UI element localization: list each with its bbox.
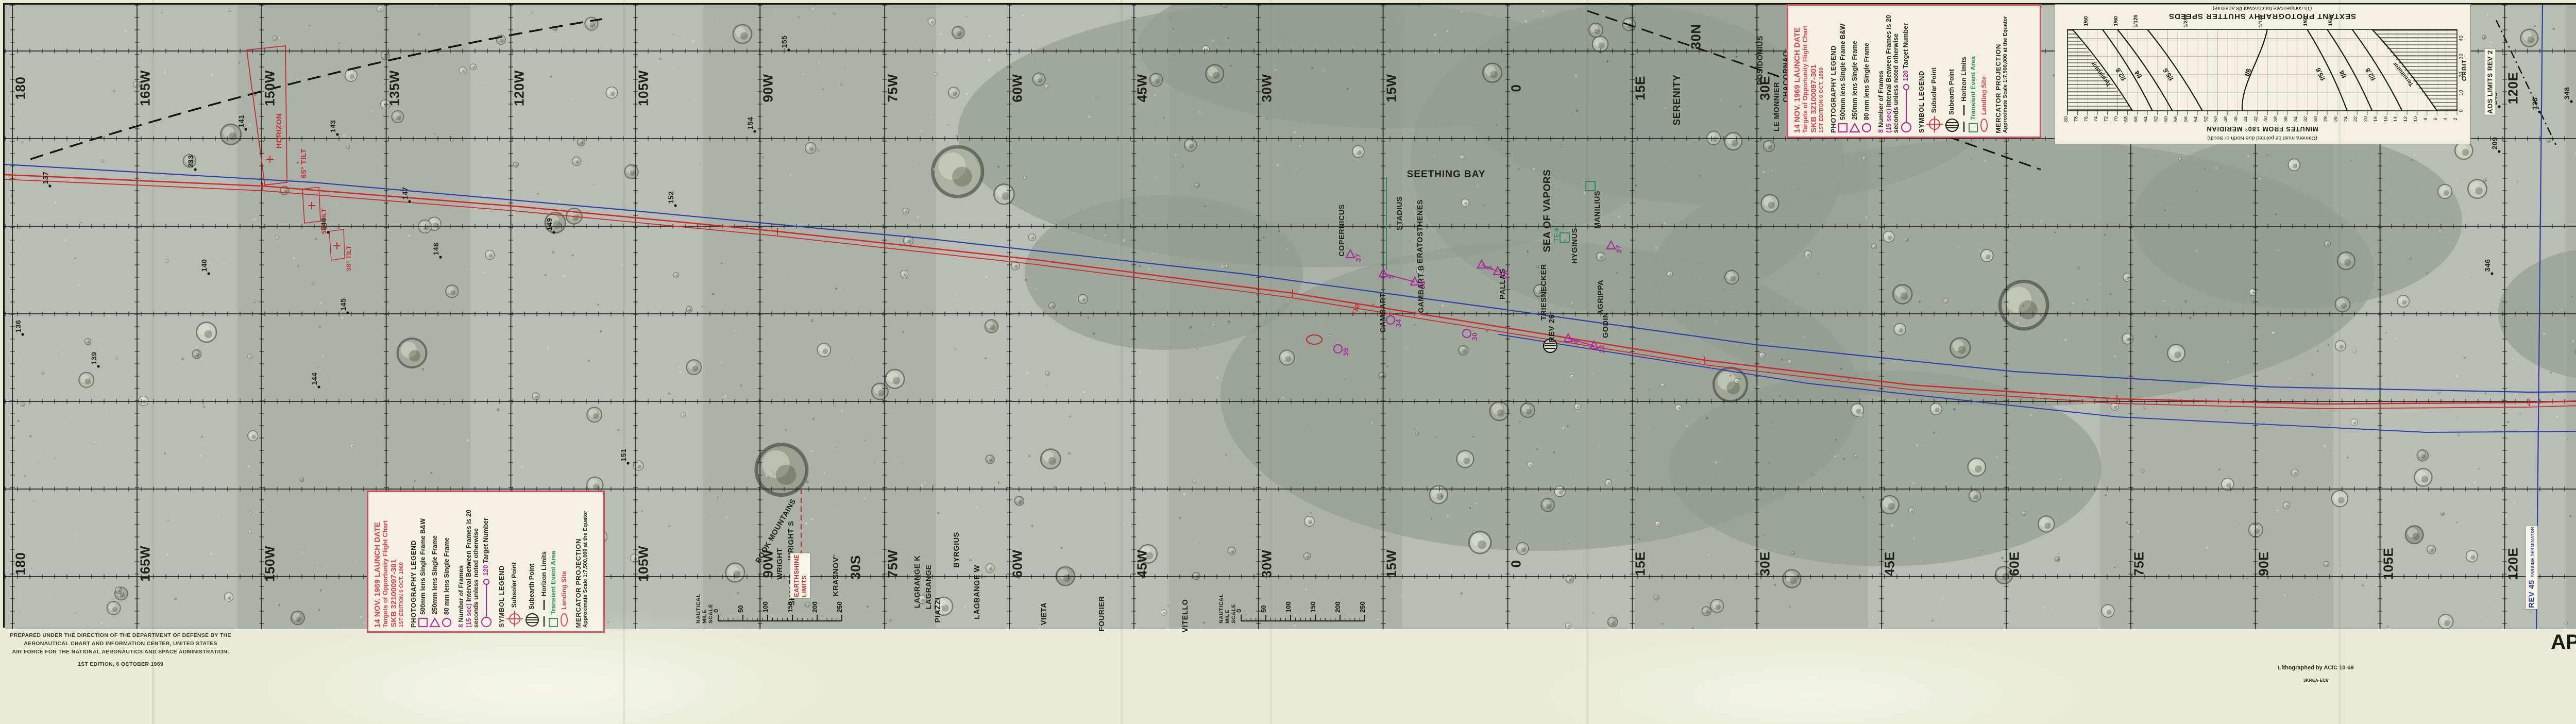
crater-label: MANILIUS	[1594, 191, 1602, 229]
svg-text:30: 30	[2459, 54, 2464, 60]
tilt-annotation: 65° TILT	[299, 148, 308, 178]
crater-label: ERATOSTHENES	[1416, 199, 1425, 263]
legend-line-text: 14 NOV. 1969 LAUNCH DATE	[1793, 27, 1801, 133]
legend-line-text: PHOTOGRAPHY LEGEND	[1830, 45, 1837, 133]
title-block: APOLLO TARGETS OF OPPORTUNITY FLIGHT CHA…	[2543, 631, 2576, 722]
attribution-line: 1ST EDITION, 6 OCTOBER 1969	[4, 661, 237, 669]
legend-line: 80 mm lens Single Frame	[1861, 9, 1872, 133]
subsolar-icon	[1926, 115, 1943, 133]
legend-line: 250mm lens Single Frame	[1849, 9, 1861, 133]
meridian-label: 150W	[262, 70, 278, 106]
crater-label: KRASNOV	[832, 557, 840, 596]
legend-line-text: Horizon Limits	[1961, 57, 1968, 102]
numbered-point-label: 143	[329, 120, 337, 133]
crater-label: VITELLO	[1181, 599, 1190, 633]
crater-label: LE MONNIER	[1773, 82, 1781, 131]
meridian-label: 105E	[2380, 548, 2396, 580]
svg-text:36: 36	[2283, 116, 2289, 122]
svg-text:(Camera must be pointed due No: (Camera must be pointed due North or Sou…	[2207, 135, 2317, 141]
sea-label: SEA OF VAPORS	[1542, 170, 1553, 252]
photo-target-number: 5	[1387, 275, 1395, 279]
legend-line: Subsolar Point	[1925, 9, 1944, 133]
svg-text:52: 52	[2203, 116, 2209, 122]
svg-text:1/125: 1/125	[2133, 14, 2139, 27]
legend-prefix-number: 8	[457, 622, 465, 628]
legend-line-text: SYMBOL LEGEND	[1918, 71, 1925, 133]
svg-text:76: 76	[2083, 116, 2089, 122]
legend-line-text: 250mm lens Single Frame	[432, 535, 438, 615]
legend-line: Transient Event Area	[1968, 9, 1979, 133]
legend-line: 120 Target Number	[1900, 9, 1912, 133]
legend-box-left: 14 NOV. 1969 LAUNCH DATETargets of Oppor…	[367, 491, 605, 633]
launch-date-line: 14 NOVEMBER 1969 LAUNCH DATE	[2543, 702, 2576, 722]
red-ellipse-icon	[1979, 117, 1989, 133]
legend-line: MERCATOR PROJECTION	[1994, 9, 2002, 133]
rev-terminator-ribbon: REV 45 FARSIDE TERMINATOR	[2526, 526, 2538, 609]
meridian-label: 15W	[1383, 550, 1399, 578]
legend-line: 500mm lens Single Frame B&W	[1837, 9, 1849, 133]
svg-text:32: 32	[2303, 116, 2309, 122]
subearth-icon	[1944, 117, 1960, 133]
svg-text:40: 40	[2459, 36, 2464, 42]
legend-line-text: Subsolar Point	[511, 562, 518, 608]
svg-text:1/60: 1/60	[2113, 16, 2119, 26]
numbered-point-label: 151	[619, 449, 628, 462]
crater-label: LAGRANGE K	[913, 555, 922, 608]
legend-line-text: 14 NOV. 1969 LAUNCH DATE	[374, 522, 381, 628]
legend-prefix-number: (15 sec)	[1885, 107, 1892, 133]
legend-line: Targets of Opportunity Flight Chart	[382, 496, 389, 628]
attribution-note: PREPARED UNDER THE DIRECTION OF THE DEPA…	[4, 632, 237, 669]
legend-line-text: 1ST EDITION 6 OCT. 1969	[1819, 68, 1824, 133]
legend-prefix-number: 120	[482, 563, 489, 576]
green-square-icon	[1968, 123, 1978, 133]
meridian-label: 45W	[1134, 74, 1150, 103]
aos-limits-ribbon: AOS LIMITS REV 2	[2485, 49, 2496, 115]
subearth-icon	[524, 612, 540, 628]
meridian-label: 90E	[2256, 551, 2272, 576]
legend-line: seconds unless noted otherwise	[1892, 9, 1900, 133]
legend-line: 80 mm lens Single Frame	[441, 496, 452, 628]
svg-text:26: 26	[2333, 116, 2338, 122]
meridian-label: 150W	[262, 546, 278, 582]
legend-line-text: SKB 32100097-301	[390, 559, 398, 628]
legend-line: Horizon Limits	[1960, 9, 1968, 133]
legend-line: 500mm lens Single Frame B&W	[417, 496, 429, 628]
chart-title: APOLLO TARGETS OF OPPORTUNITY FLIGHT CHA…	[2543, 631, 2576, 677]
numbered-point-label: 137	[41, 172, 49, 184]
svg-text:74: 74	[2093, 116, 2099, 122]
meridian-label: 180	[13, 77, 29, 100]
mission-subtitle: APOLLO MISSION 12	[2543, 682, 2576, 696]
legend-line: 8 Number of Frames	[1877, 9, 1885, 133]
tilt-annotation: 50° TILT	[320, 208, 328, 234]
crater-label: PIAZZI	[934, 598, 942, 623]
meridian-label: 75E	[2131, 551, 2147, 576]
legend-line-text: PHOTOGRAPHY LEGEND	[410, 540, 417, 628]
photo-target-number: 37	[1354, 254, 1362, 262]
legend-line-text: SKB 32100097-301	[1810, 64, 1818, 133]
numbered-point-label: 144	[310, 373, 318, 385]
svg-text:60: 60	[2163, 116, 2169, 122]
legend-line: Approximate Scale 1:7,500,000 at the Equ…	[582, 496, 589, 628]
svg-text:24: 24	[2343, 116, 2349, 122]
svg-text:f/5.6: f/5.6	[2314, 66, 2327, 82]
numbered-point-label: 209	[2490, 137, 2499, 150]
legend-line: Landing Site	[1979, 9, 1989, 133]
sextant-graph-art: (Camera must be pointed due North or Sou…	[2055, 5, 2470, 144]
legend-line-text: Transient Event Area	[550, 551, 557, 615]
svg-text:10: 10	[2459, 90, 2464, 96]
sea-label: SERENITY	[1672, 74, 1683, 125]
svg-text:12: 12	[2403, 116, 2409, 122]
legend-line-text: (15 sec) Interval Between Frames is 20	[1886, 15, 1892, 133]
meridian-label: 105W	[636, 546, 652, 582]
red-ellipse-icon	[560, 612, 569, 628]
legend-line: Approximate Scale 1:7,500,000 at the Equ…	[2002, 9, 2009, 133]
meridian-label: 45W	[1134, 550, 1150, 578]
meridian-label: 75W	[885, 550, 901, 578]
svg-text:80: 80	[2063, 116, 2069, 122]
meridian-label: 15E	[1633, 551, 1649, 576]
crater-label: STADIUS	[1396, 196, 1404, 230]
meridian-label: 0	[1508, 85, 1524, 92]
legend-line-text: SYMBOL LEGEND	[498, 565, 505, 628]
legend-line: SYMBOL LEGEND	[1918, 9, 1925, 133]
meridian-label: 90W	[760, 74, 776, 103]
legend-line-text: 8 Number of Frames	[1878, 71, 1885, 133]
svg-text:(To compensate for constant f/: (To compensate for constant f/8 aperture…	[2213, 5, 2312, 11]
attribution-line: PREPARED UNDER THE DIRECTION OF THE DEPA…	[4, 632, 237, 640]
legend-line: PHOTOGRAPHY LEGEND	[410, 496, 417, 628]
svg-text:2: 2	[2453, 117, 2459, 120]
svg-text:1/60: 1/60	[2083, 16, 2089, 26]
legend-line-text: Approximate Scale 1:7,500,000 at the Equ…	[583, 511, 588, 628]
legend-prefix-number: 120	[1902, 69, 1909, 81]
legend-line: 1ST EDITION 6 OCT. 1969	[1818, 9, 1825, 133]
legend-line-text: Subearth Point	[1948, 69, 1955, 115]
meridian-label: 30W	[1259, 550, 1275, 578]
legend-line-text: Horizon Limits	[541, 551, 548, 596]
photo-target-number: 39	[1342, 348, 1350, 357]
numbered-point-label: 145	[339, 298, 347, 311]
meridian-label: 30E	[1757, 551, 1773, 576]
square-icon	[1838, 123, 1848, 133]
meridian-label: 60W	[1010, 550, 1026, 578]
target-line-icon	[1901, 83, 1912, 133]
legend-line-text: 8 Number of Frames	[458, 565, 465, 628]
meridian-label: 30W	[1259, 74, 1275, 103]
legend-line-text: MERCATOR PROJECTION	[575, 538, 582, 628]
numbered-point-label: 149	[545, 218, 553, 231]
legend-line-text: Transient Event Area	[1970, 56, 1977, 120]
sextant-shutter-speed-graph: (Camera must be pointed due North or Sou…	[2055, 4, 2471, 144]
crater-label: HYGINUS	[1571, 228, 1579, 264]
svg-text:28: 28	[2323, 116, 2329, 122]
circle-icon	[442, 617, 452, 628]
legend-line: Subearth Point	[1944, 9, 1960, 133]
svg-text:20: 20	[2363, 116, 2369, 122]
crater-label: FOURIER	[1098, 596, 1106, 632]
crater-label: VIETA	[1040, 602, 1048, 625]
legend-line: (15 sec) Interval Between Frames is 20	[465, 496, 473, 628]
legend-line: Horizon Limits	[540, 496, 548, 628]
svg-text:6: 6	[2433, 117, 2438, 120]
earthshine-limits-label: EARTHSHINELIMITS	[790, 553, 810, 598]
meridian-label: 60E	[2007, 551, 2023, 576]
legend-line: MERCATOR PROJECTION	[574, 496, 582, 628]
legend-line: SKB 32100097-301	[1809, 9, 1818, 133]
legend-line: (15 sec) Interval Between Frames is 20	[1885, 9, 1893, 133]
crater-label: GODIN	[1602, 312, 1610, 338]
svg-text:56: 56	[2183, 116, 2189, 122]
latitude-label: 30N	[1688, 24, 1704, 49]
legend-line-text: 500mm lens Single Frame B&W	[1840, 24, 1846, 120]
meridian-label: 0	[1508, 560, 1524, 568]
numbered-point-label: 139	[90, 352, 98, 365]
photo-target-number: 27	[1615, 245, 1623, 254]
legend-line-text: Subsolar Point	[1931, 68, 1938, 113]
legend-line: Targets of Opportunity Flight Chart	[1802, 9, 1809, 133]
svg-text:0: 0	[2459, 109, 2464, 112]
svg-text:66: 66	[2133, 116, 2139, 122]
legend-line: Subsolar Point	[505, 496, 524, 628]
legend-line: 14 NOV. 1969 LAUNCH DATE	[1793, 9, 1802, 133]
svg-text:48: 48	[2223, 116, 2229, 122]
svg-text:MINUTES FROM 180° MERIDIAN: MINUTES FROM 180° MERIDIAN	[2206, 125, 2318, 132]
crater-label: GAMBART	[1379, 293, 1387, 333]
svg-text:44: 44	[2243, 116, 2249, 122]
svg-text:68: 68	[2123, 116, 2129, 122]
numbered-point-label: 154	[746, 117, 754, 130]
meridian-label: 120W	[511, 70, 527, 106]
numbered-point-label: 140	[200, 259, 208, 272]
legend-line-text: Landing Site	[1981, 76, 1988, 115]
photo-target-number: 28	[1501, 271, 1510, 279]
subsolar-icon	[506, 610, 523, 628]
legend-line-text: (15 sec) Interval Between Frames is 20	[466, 510, 472, 628]
dashes-icon	[1962, 104, 1966, 133]
svg-text:4: 4	[2443, 117, 2449, 120]
svg-text:f/2.8: f/2.8	[2364, 66, 2377, 82]
numbered-point-label: 136	[14, 320, 22, 333]
svg-text:46: 46	[2233, 116, 2239, 122]
svg-text:f/8: f/8	[2243, 68, 2253, 77]
attribution-line: AERONAUTICAL CHART AND INFORMATION CENTE…	[4, 640, 237, 648]
svg-text:64: 64	[2143, 116, 2149, 122]
svg-text:40: 40	[2263, 116, 2269, 122]
legend-line: SKB 32100097-301	[389, 496, 398, 628]
svg-text:42: 42	[2253, 116, 2259, 122]
print-note: Lithographed by ACIC 10-69 3KREA-EC6	[2231, 665, 2401, 683]
meridian-label: 135W	[386, 70, 402, 106]
print-code: 3KREA-EC6	[2231, 678, 2401, 683]
svg-text:SEXTANT PHOTOGRAPHY SHUTTER SP: SEXTANT PHOTOGRAPHY SHUTTER SPEEDS	[2168, 12, 2356, 21]
svg-text:30: 30	[2313, 116, 2319, 122]
crater-label: BYRGIUS	[953, 532, 961, 568]
svg-text:72: 72	[2104, 116, 2109, 122]
meridian-label: 165W	[137, 546, 153, 582]
numbered-point-label: 346	[2483, 259, 2492, 272]
crater-label: COPERNICUS	[1338, 204, 1346, 257]
square-icon	[418, 617, 428, 628]
legend-line-text: 250mm lens Single Frame	[1852, 41, 1858, 120]
svg-text:58: 58	[2173, 116, 2179, 122]
legend-line: 250mm lens Single Frame	[429, 496, 441, 628]
legend-prefix-number: (15 sec)	[465, 602, 472, 628]
legend-line: seconds unless noted otherwise	[472, 496, 480, 628]
te-area-label: TE-6	[1553, 227, 1560, 242]
svg-text:16: 16	[2383, 116, 2388, 122]
legend-line-text: 80 mm lens Single Frame	[1863, 43, 1870, 120]
svg-text:22: 22	[2353, 116, 2359, 122]
legend-line: Transient Event Area	[548, 496, 559, 628]
meridian-label: 15W	[1383, 74, 1399, 103]
attribution-line: AIR FORCE FOR THE NATIONAL AERONAUTICS A…	[4, 648, 237, 656]
legend-line-text: 1ST EDITION 6 OCT. 1969	[399, 562, 404, 628]
crater-label: AGRIPPA	[1597, 280, 1605, 315]
legend-line: Landing Site	[559, 496, 569, 628]
crater-label: LAGRANGE	[925, 565, 933, 610]
numbered-point-label: 148	[432, 243, 440, 256]
legend-box-center: 14 NOV. 1969 LAUNCH DATETargets of Oppor…	[1787, 4, 2041, 138]
crater-label: POSIDONIUS	[1756, 36, 1765, 85]
svg-text:38: 38	[2273, 116, 2279, 122]
dashes-icon	[542, 599, 546, 628]
legend-line-text: 500mm lens Single Frame B&W	[420, 518, 427, 615]
svg-text:8: 8	[2423, 117, 2429, 120]
legend-line-text: 120 Target Number	[483, 518, 489, 576]
scalebar-label: NAUTICAL MILE SCALE	[695, 590, 714, 624]
meridian-label: 120E	[2505, 548, 2521, 580]
legend-line: 1ST EDITION 6 OCT. 1969	[398, 496, 405, 628]
svg-text:f/2.8: f/2.8	[2114, 66, 2127, 82]
rev26-label: REV 26	[1548, 314, 1556, 343]
legend-line: PHOTOGRAPHY LEGEND	[1829, 9, 1837, 133]
legend-line-text: 120 Target Number	[1903, 23, 1909, 81]
numbered-point-label: 147	[401, 187, 409, 200]
latitude-label: 30S	[848, 555, 864, 580]
meridian-label: 60W	[1010, 74, 1026, 103]
svg-text:34: 34	[2293, 116, 2299, 122]
legend-line-text: Subearth Point	[529, 564, 535, 610]
meridian-label: 165W	[137, 70, 153, 106]
svg-text:f/4: f/4	[2337, 69, 2348, 79]
numbered-point-label: 152	[667, 191, 675, 204]
legend-line: 120 Target Number	[480, 496, 493, 628]
photo-target-number: 30	[1470, 332, 1479, 341]
photo-target-number: 3	[1485, 266, 1494, 270]
lithograph-credit: Lithographed by ACIC 10-69	[2231, 665, 2401, 671]
numbered-point-label: 233	[187, 155, 195, 168]
svg-text:70: 70	[2113, 116, 2119, 122]
legend-line: 14 NOV. 1969 LAUNCH DATE	[373, 496, 382, 628]
get-tick-label: +10	[1349, 302, 1362, 317]
legend-line: Subearth Point	[524, 496, 540, 628]
svg-text:62: 62	[2153, 116, 2159, 122]
svg-text:54: 54	[2193, 116, 2199, 122]
numbered-point-label: 348	[2563, 87, 2571, 100]
legend-line-text: Approximate Scale 1:7,500,000 at the Equ…	[2003, 16, 2008, 133]
sea-label: SEETHING BAY	[1407, 169, 1486, 180]
legend-line: SYMBOL LEGEND	[498, 496, 505, 628]
photo-target-number: 22	[1598, 345, 1606, 353]
svg-text:50: 50	[2213, 116, 2219, 122]
svg-text:78: 78	[2073, 116, 2079, 122]
meridian-label: 180	[13, 552, 29, 576]
photo-target-number: 34	[1394, 319, 1402, 328]
scalebar-label: NAUTICAL MILE SCALE	[1218, 590, 1237, 624]
legend-line-text: 80 mm lens Single Frame	[444, 537, 450, 615]
svg-text:ORBIT: ORBIT	[2461, 59, 2468, 81]
svg-text:10: 10	[2413, 116, 2418, 122]
svg-text:18: 18	[2373, 116, 2379, 122]
legend-line-text: Targets of Opportunity Flight Chart	[1802, 26, 1809, 133]
triangle-icon	[1849, 123, 1860, 133]
numbered-point-label: 141	[237, 115, 245, 128]
legend-line-text: MERCATOR PROJECTION	[1995, 44, 2002, 133]
triangle-icon	[429, 617, 440, 628]
legend-line-text: Landing Site	[561, 571, 568, 610]
photo-target-number: 4	[1572, 340, 1580, 344]
crater-label: TRIESNECKER	[1540, 264, 1548, 320]
meridian-label: 120E	[2505, 72, 2521, 105]
meridian-label: 45E	[1882, 551, 1898, 576]
photo-target-number: 33	[1418, 281, 1427, 290]
crater-label: LAGRANGE W	[973, 565, 981, 619]
chart-sheet: 0501001502002500501001502002500501001502…	[0, 0, 2576, 724]
meridian-label: 75W	[885, 74, 901, 103]
legend-line-text: seconds unless noted otherwise	[1893, 33, 1900, 133]
legend-line: 8 Number of Frames	[457, 496, 465, 628]
tilt-annotation: HORIZON	[275, 113, 283, 148]
svg-text:14: 14	[2393, 116, 2399, 122]
tilt-annotation: 30° TILT	[345, 245, 352, 271]
legend-line-text: seconds unless noted otherwise	[473, 528, 480, 628]
meridian-label: 105W	[636, 70, 652, 106]
crater-label: WRIGHT	[776, 548, 784, 580]
numbered-point-label: 123	[2531, 97, 2539, 110]
green-square-icon	[548, 617, 558, 628]
legend-line-text: Targets of Opportunity Flight Chart	[382, 520, 389, 628]
meridian-label: 15E	[1633, 76, 1649, 100]
target-line-icon	[481, 578, 492, 628]
legend-prefix-number: 8	[1877, 128, 1885, 133]
numbered-point-label: 155	[780, 36, 788, 48]
circle-icon	[1861, 123, 1872, 133]
